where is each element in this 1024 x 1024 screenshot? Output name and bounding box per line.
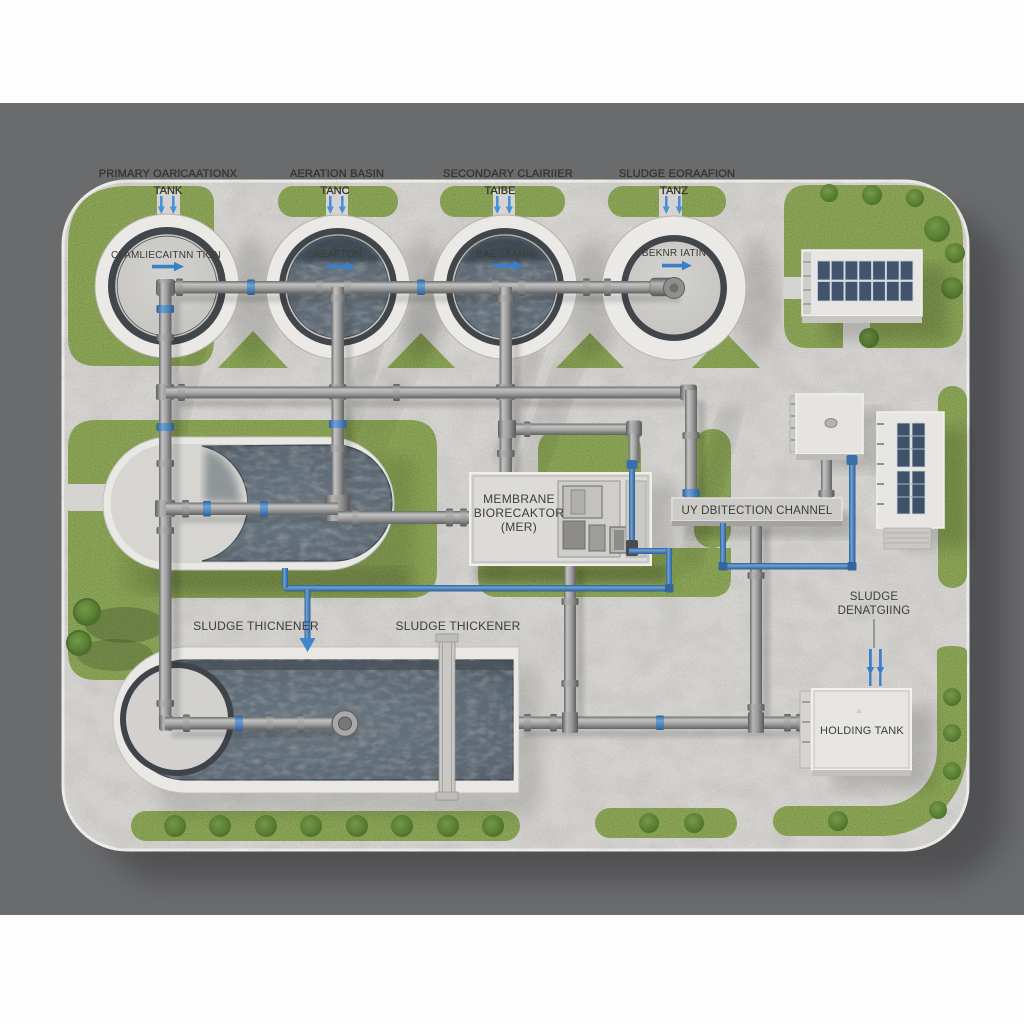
- svg-text:SLUDGE THICNENER: SLUDGE THICNENER: [193, 619, 319, 633]
- svg-text:BEKNR IATIN: BEKNR IATIN: [642, 248, 706, 259]
- svg-text:HOLDING TANK: HOLDING TANK: [820, 725, 904, 737]
- svg-text:SLUDGE EORAAFION: SLUDGE EORAAFION: [619, 168, 735, 180]
- svg-text:PRIMARY OARlCAATIONX: PRIMARY OARlCAATIONX: [99, 168, 238, 180]
- svg-text:TANZ: TANZ: [660, 185, 688, 197]
- svg-text:SECONDARY CLAIRIIER: SECONDARY CLAIRIIER: [443, 168, 573, 180]
- svg-text:CLAMLIECAITNN TION: CLAMLIECAITNN TION: [111, 250, 221, 261]
- svg-text:SLUDGE THICKENER: SLUDGE THICKENER: [395, 619, 520, 633]
- svg-text:DENATGIING: DENATGIING: [838, 605, 911, 617]
- svg-text:SLUDGE: SLUDGE: [850, 591, 899, 603]
- svg-text:AEAFTON: AEAFTON: [314, 249, 362, 260]
- svg-text:TANC: TANC: [320, 185, 349, 197]
- svg-text:MEMBRANE: MEMBRANE: [483, 492, 555, 506]
- svg-text:BIORECAKTOR: BIORECAKTOR: [474, 506, 564, 520]
- svg-text:TANK: TANK: [154, 185, 183, 197]
- svg-text:UY DBITECTION CHANNEL: UY DBITECTION CHANNEL: [682, 505, 833, 517]
- svg-text:TAIBE: TAIBE: [485, 185, 516, 197]
- svg-text:BAE 18AMN: BAE 18AMN: [476, 249, 534, 260]
- svg-text:AERATION BASIN: AERATION BASIN: [290, 168, 384, 180]
- svg-text:(MER): (MER): [501, 520, 537, 534]
